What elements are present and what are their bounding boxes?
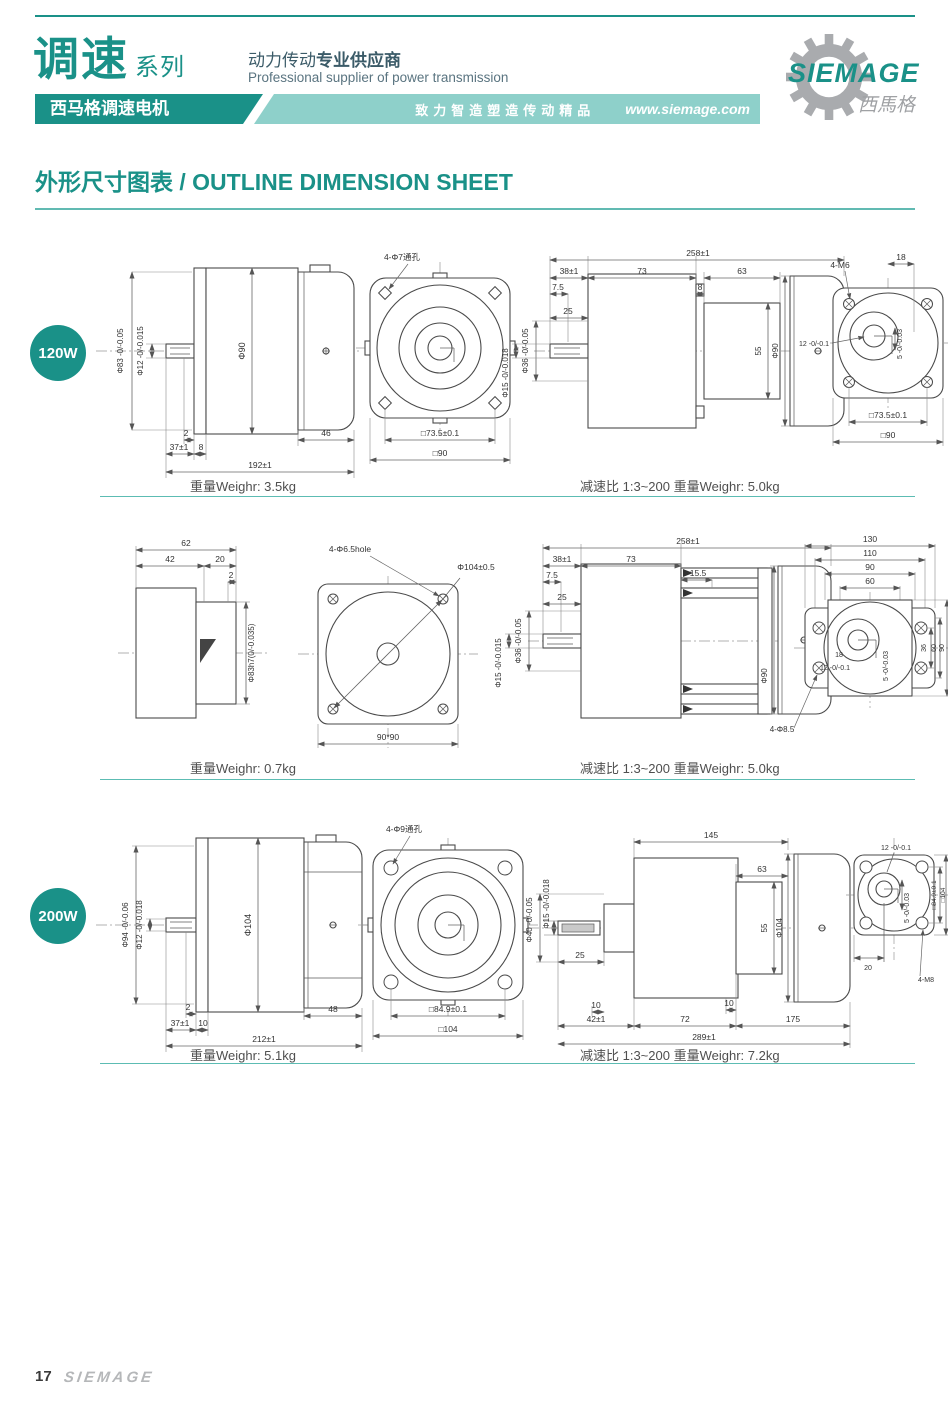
dim-label: 46 bbox=[321, 428, 331, 438]
gearbox-front-view-200w: 12 -0/-0.1 5 -0/-0.03 20 4-M8 □84.9±0.1 … bbox=[846, 838, 948, 984]
dim-label: 90 bbox=[865, 562, 875, 572]
dim-label: 18 bbox=[835, 652, 843, 659]
dim-label: 15.5 bbox=[690, 568, 707, 578]
dim-label: 18 bbox=[896, 252, 906, 262]
motor-weight-120w: 重量Weighr: 3.5kg bbox=[190, 476, 296, 495]
dim-label: 48 bbox=[328, 1004, 338, 1014]
dim-label: Φ12 -0/-0.018 bbox=[135, 900, 144, 950]
dim-label: 25 bbox=[563, 306, 573, 316]
dim-label: 258±1 bbox=[686, 248, 710, 258]
gearmotor-side-view-200w: Φ40 -0/-0.05 Φ15 -0/-0.018 55 Φ104 145 6… bbox=[525, 830, 888, 1048]
dim-label: Φ12 -0/-0.015 bbox=[136, 326, 145, 376]
dim-label: 175 bbox=[786, 1014, 800, 1024]
dim-label: 258±1 bbox=[676, 536, 700, 546]
dim-label: □104 bbox=[940, 887, 947, 902]
dim-label: Φ15 -0/-0.015 bbox=[494, 638, 503, 688]
dim-label: 36 bbox=[921, 644, 928, 652]
dim-label: 5 -0/-0.03 bbox=[883, 651, 890, 681]
series-title: 调速系列 bbox=[33, 36, 185, 82]
dim-label: 62 bbox=[181, 538, 191, 548]
section-divider bbox=[100, 1063, 915, 1064]
title-underline bbox=[35, 208, 915, 210]
dim-label: 12 -0/-0.1 bbox=[881, 845, 911, 852]
dim-label: 10 bbox=[591, 1000, 601, 1010]
dim-label: □84.9±0.1 bbox=[931, 880, 938, 910]
dim-label: 130 bbox=[863, 536, 877, 544]
dimension-drawings-120w: Φ83 -0/-0.05 Φ12 -0/-0.015 Φ90 2 37±1 8 … bbox=[88, 248, 948, 486]
dim-label: □73.5±0.1 bbox=[421, 428, 459, 438]
dim-label: 12 -0/-0.1 bbox=[799, 341, 829, 348]
dim-label: 212±1 bbox=[252, 1034, 276, 1044]
motor-weight-200w: 重量Weighr: 5.1kg bbox=[190, 1045, 296, 1064]
dim-label: Φ90 bbox=[760, 668, 769, 684]
supplier-cn-normal: 动力传动 bbox=[248, 51, 316, 70]
supplier-line-cn: 动力传动专业供应商 bbox=[248, 46, 401, 71]
dim-label: 289±1 bbox=[692, 1032, 716, 1042]
dim-label: 2 bbox=[229, 570, 234, 580]
dim-label: 55 bbox=[760, 923, 769, 932]
catalog-page: 调速系列 西马格调速电机 致力智造塑造传动精品 www.siemage.com … bbox=[0, 0, 950, 1404]
gearmotor-side-view-120w: 55 Φ90 258±1 38±1 73 63 7.5 8 25 Φ36 -0/… bbox=[501, 248, 858, 428]
gearmotor-side-view-mid: 258±1 38±1 73 15.5 7.5 25 Φ36 -0/-0.05 Φ… bbox=[494, 536, 850, 718]
front-plate-view: 4-Φ6.5hole Φ104±0.5 90*90 bbox=[298, 544, 495, 748]
dim-label: 37±1 bbox=[170, 442, 189, 452]
dim-label: 20 bbox=[215, 554, 225, 564]
dim-label: 60 bbox=[931, 644, 938, 652]
motor-front-view-200w: 4-Φ9通孔 □84.9±0.1 □104 bbox=[358, 824, 538, 1040]
header-top-rule bbox=[35, 15, 915, 17]
dim-label: 20 bbox=[864, 965, 872, 972]
dimension-drawings-200w: Φ94 -0/-0.06 Φ12 -0/-0.018 Φ104 2 37±1 1… bbox=[88, 820, 948, 1056]
dim-label: 5 -0/-0.03 bbox=[904, 893, 911, 923]
dim-label: Φ83h7(0/-0.035) bbox=[247, 623, 256, 682]
section-divider bbox=[100, 779, 915, 780]
dim-label: 145 bbox=[704, 830, 718, 840]
dimension-drawings-mid: 62 42 20 2 Φ83h7(0/-0.035) 4-Φ6.5hole bbox=[88, 536, 948, 770]
ribbon-website[interactable]: www.siemage.com bbox=[625, 101, 750, 117]
dim-label: Φ104 bbox=[775, 918, 784, 938]
dim-label: 10 bbox=[198, 1018, 208, 1028]
holes-label: 4-M6 bbox=[830, 260, 850, 270]
dim-label: 73 bbox=[637, 266, 647, 276]
dim-label: 8 bbox=[698, 282, 703, 292]
dim-label: 10 bbox=[724, 998, 734, 1008]
dim-label: 5 -0/-0.03 bbox=[897, 329, 904, 359]
logo-wordmark-cn: 西馬格 bbox=[858, 90, 915, 117]
dim-label: 38±1 bbox=[560, 266, 579, 276]
dim-label: 110 bbox=[863, 548, 877, 558]
page-title: 外形尺寸图表 / OUTLINE DIMENSION SHEET bbox=[35, 163, 513, 197]
dim-label: Φ94 -0/-0.06 bbox=[121, 902, 130, 948]
page-number: 17 bbox=[35, 1368, 52, 1385]
logo-wordmark: SIEMAGE bbox=[788, 58, 920, 89]
dim-label: 55 bbox=[754, 346, 763, 355]
dim-label: Φ83 -0/-0.05 bbox=[116, 328, 125, 374]
series-suffix: 系列 bbox=[135, 54, 185, 81]
dim-label: 90*90 bbox=[377, 732, 399, 742]
dim-label: Φ15 -0/-0.018 bbox=[542, 879, 551, 929]
dim-label: 7.5 bbox=[546, 570, 558, 580]
motor-side-view-120w: Φ83 -0/-0.05 Φ12 -0/-0.015 Φ90 2 37±1 8 … bbox=[96, 265, 360, 478]
dim-label: □73.5±0.1 bbox=[869, 410, 907, 420]
dim-label: 37±1 bbox=[171, 1018, 190, 1028]
dim-label: 63 bbox=[737, 266, 747, 276]
dim-label: 72 bbox=[680, 1014, 690, 1024]
header-ribbon: 致力智造塑造传动精品 www.siemage.com bbox=[254, 94, 760, 124]
dim-label: Φ36 -0/-0.05 bbox=[521, 328, 530, 374]
dim-label: Φ90 bbox=[771, 343, 780, 359]
dim-label: □84.9±0.1 bbox=[429, 1004, 467, 1014]
dim-label: 42±1 bbox=[587, 1014, 606, 1024]
dim-label: □90 bbox=[433, 448, 448, 458]
holes-label: 4-Φ8.5 bbox=[770, 725, 795, 734]
dim-label: 7.5 bbox=[552, 282, 564, 292]
dim-label: □104 bbox=[438, 1024, 458, 1034]
dim-label: Φ90 bbox=[237, 342, 247, 359]
holes-label: 4-M8 bbox=[918, 977, 934, 984]
supplier-cn-bold: 专业供应商 bbox=[316, 51, 401, 70]
motor-front-view-120w: 4-Φ7通孔 □73.5±0.1 □90 bbox=[356, 252, 524, 464]
dim-label: 38±1 bbox=[553, 554, 572, 564]
dim-label: 2 bbox=[184, 428, 189, 438]
dim-label: 73 bbox=[626, 554, 636, 564]
dim-label: Φ15 -0/-0.018 bbox=[501, 348, 510, 398]
dim-label: Φ104±0.5 bbox=[457, 562, 495, 572]
dim-label: Φ104 bbox=[243, 914, 253, 936]
motor-weight-mid: 重量Weighr: 0.7kg bbox=[190, 758, 296, 777]
dim-label: Φ36 -0/-0.05 bbox=[514, 618, 523, 664]
series-banner: 西马格调速电机 bbox=[35, 94, 263, 124]
gear-weight-120w: 减速比 1:3~200 重量Weighr: 5.0kg bbox=[580, 476, 780, 495]
holes-label: 4-Φ6.5hole bbox=[329, 544, 371, 554]
motor-side-view-200w: Φ94 -0/-0.06 Φ12 -0/-0.018 Φ104 2 37±1 1… bbox=[96, 835, 370, 1052]
dim-label: 25 bbox=[557, 592, 567, 602]
dim-label: 192±1 bbox=[248, 460, 272, 470]
series-title-cn: 调速 bbox=[33, 33, 129, 85]
power-badge-120w: 120W bbox=[30, 325, 86, 381]
section-divider bbox=[100, 496, 915, 497]
dim-label: Φ40 -0/-0.05 bbox=[525, 897, 534, 943]
dim-label: 42 bbox=[165, 554, 175, 564]
power-badge-200w: 200W bbox=[30, 888, 86, 944]
dim-label: □90 bbox=[881, 430, 896, 440]
supplier-line-en: Professional supplier of power transmiss… bbox=[248, 70, 508, 85]
gear-weight-200w: 减速比 1:3~200 重量Weighr: 7.2kg bbox=[580, 1045, 780, 1064]
dim-label: 12 -0/-0.1 bbox=[820, 665, 850, 672]
dim-label: 25 bbox=[575, 950, 585, 960]
ribbon-slogan: 致力智造塑造传动精品 bbox=[415, 100, 595, 119]
footer-brand: SIEMAGE bbox=[63, 1369, 156, 1386]
holes-label: 4-Φ7通孔 bbox=[384, 252, 421, 262]
holes-label: 4-Φ9通孔 bbox=[386, 824, 423, 834]
gear-weight-mid: 减速比 1:3~200 重量Weighr: 5.0kg bbox=[580, 758, 780, 777]
dim-label: 2 bbox=[186, 1002, 191, 1012]
dim-label: 60 bbox=[865, 576, 875, 586]
dim-label: 63 bbox=[757, 864, 767, 874]
brake-unit-side-view: 62 42 20 2 Φ83h7(0/-0.035) bbox=[118, 538, 268, 718]
dim-label: 8 bbox=[199, 442, 204, 452]
dim-label: 90 bbox=[939, 644, 946, 652]
